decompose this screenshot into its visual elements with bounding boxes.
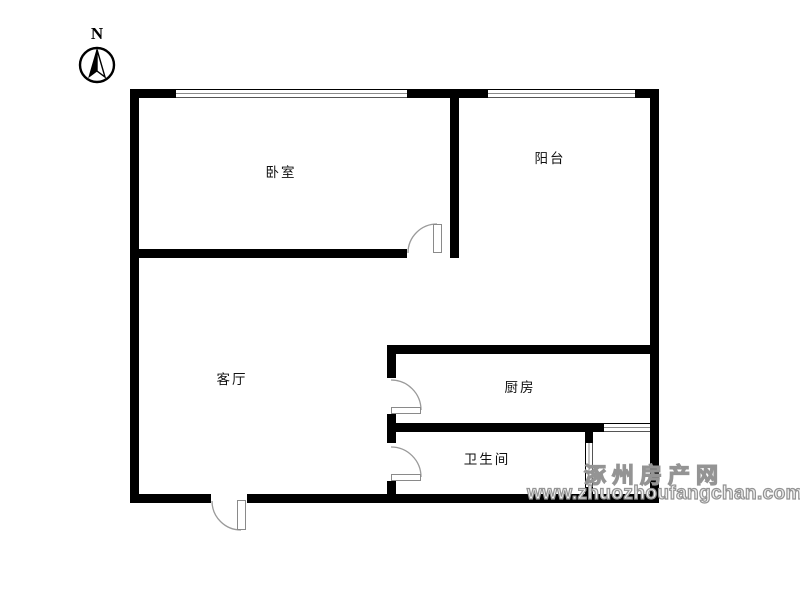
wall-kitchen-bath-left-mid bbox=[387, 414, 396, 443]
wall-kitchen-top bbox=[387, 345, 650, 354]
kitchen-door-leaf bbox=[391, 407, 421, 414]
bedroom-window bbox=[176, 89, 407, 98]
compass-rose-icon bbox=[77, 45, 117, 85]
floor-plan: N 卧室 阳台 客厅 厨房 卫生间 涿州房产网 www.zhuo bbox=[0, 0, 800, 600]
wall-right bbox=[650, 89, 659, 503]
room-label-bathroom: 卫生间 bbox=[464, 448, 511, 468]
wall-bedroom-balcony-divider bbox=[450, 98, 459, 258]
room-label-living-room: 客厅 bbox=[217, 368, 248, 388]
balcony-window bbox=[488, 89, 635, 98]
bathroom-door-arc bbox=[391, 447, 421, 477]
kitchen-door-arc bbox=[391, 380, 421, 410]
bathroom-door-leaf bbox=[391, 474, 421, 481]
wall-bedroom-bottom bbox=[130, 249, 407, 258]
wall-kitchen-left-upper bbox=[387, 354, 396, 378]
compass: N bbox=[75, 24, 119, 90]
bedroom-door-leaf bbox=[433, 224, 442, 253]
wall-left bbox=[130, 89, 139, 503]
room-label-kitchen: 厨房 bbox=[505, 376, 536, 396]
kitchen-window bbox=[604, 423, 650, 432]
room-label-bedroom: 卧室 bbox=[266, 161, 297, 181]
wall-bottom-left-segment bbox=[130, 494, 211, 503]
compass-north-label: N bbox=[91, 24, 103, 44]
entrance-door-leaf bbox=[237, 500, 246, 530]
wall-kitchen-bottom bbox=[396, 423, 604, 432]
watermark-site-url: www.zhuozhoufangchan.com bbox=[527, 483, 800, 505]
wall-bath-right-stub-top bbox=[585, 432, 593, 443]
room-label-balcony: 阳台 bbox=[535, 147, 566, 167]
wall-bath-left-lower bbox=[387, 481, 396, 494]
